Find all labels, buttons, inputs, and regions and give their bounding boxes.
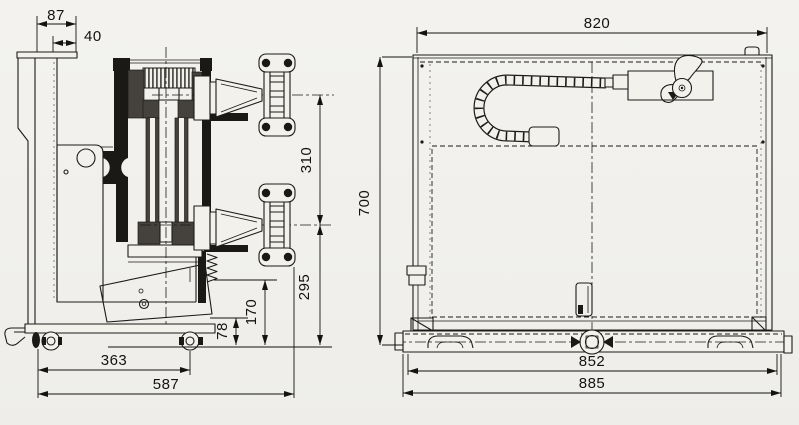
dim-label-587: 587 (153, 376, 180, 393)
technical-drawing: 87 40 310 295 170 78 363 587 (0, 0, 799, 425)
dim-label-363: 363 (101, 352, 128, 369)
side-view: 87 40 310 295 170 78 363 587 (5, 7, 334, 398)
dim-label-40: 40 (84, 28, 102, 45)
base-rail (395, 330, 792, 354)
caster-wheel-rear (42, 332, 62, 350)
mounting-plate (100, 264, 212, 322)
dim-label-700: 700 (356, 190, 373, 217)
dim-label-852: 852 (579, 353, 606, 370)
cabinet-frame (407, 47, 772, 355)
conduit-anchor-block (529, 127, 559, 146)
pedal-pad (32, 332, 40, 348)
dim-label-87: 87 (47, 7, 65, 24)
dim-label-820: 820 (584, 15, 611, 32)
cylinder-assembly (128, 47, 202, 328)
dim-label-295: 295 (296, 274, 313, 301)
spring (207, 254, 217, 282)
operating-mechanism (605, 55, 713, 102)
dim-label-885: 885 (579, 375, 606, 392)
corner-foot-left (411, 318, 433, 331)
side-clamp (407, 266, 426, 275)
door-panel (432, 146, 757, 317)
dim-label-310: 310 (298, 147, 315, 174)
scanned-drawing-page: 87 40 310 295 170 78 363 587 (0, 0, 799, 425)
dim-label-78: 78 (214, 322, 231, 340)
base-carriage (5, 324, 215, 350)
tow-hook (5, 328, 25, 345)
dim-label-170: 170 (243, 299, 260, 326)
corner-foot-right (752, 317, 766, 331)
flexible-conduit (479, 80, 606, 146)
stand-column (17, 52, 196, 325)
lifting-tab (745, 47, 759, 55)
front-view: 820 700 852 885 (356, 15, 792, 397)
